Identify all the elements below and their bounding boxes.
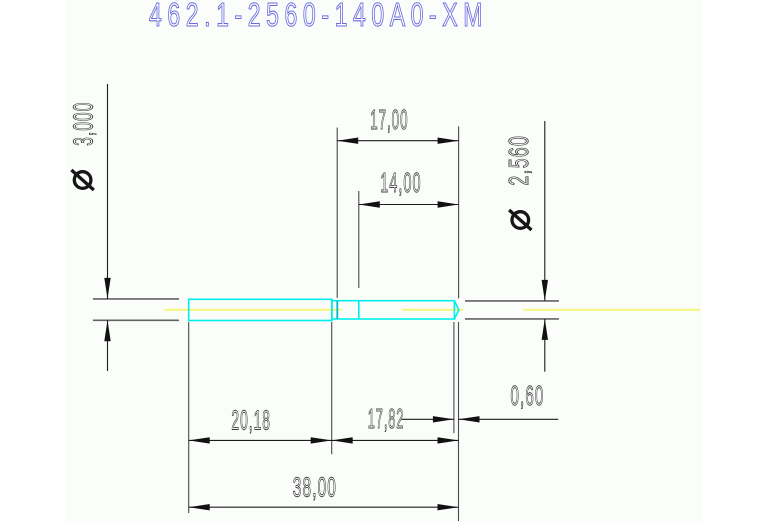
svg-text:3,000: 3,000 [68, 102, 99, 146]
svg-text:20,18: 20,18 [231, 404, 271, 435]
svg-text:17,00: 17,00 [370, 104, 408, 135]
svg-text:0,60: 0,60 [511, 380, 545, 411]
svg-text:2,560: 2,560 [503, 135, 534, 186]
svg-text:17,82: 17,82 [368, 403, 405, 434]
svg-text:462.1-2560-140A0-XM: 462.1-2560-140A0-XM [149, 0, 488, 33]
svg-text:38,00: 38,00 [293, 472, 337, 503]
svg-text:14,00: 14,00 [380, 167, 421, 198]
